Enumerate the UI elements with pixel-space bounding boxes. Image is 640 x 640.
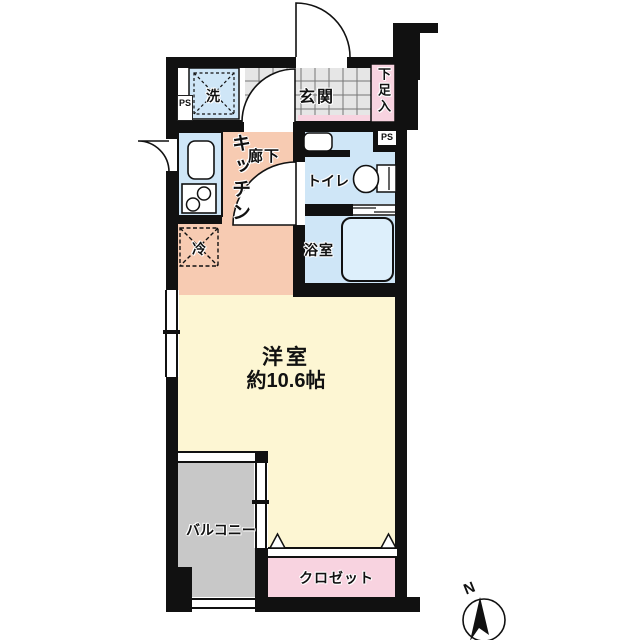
- wall-top-left: [166, 57, 296, 68]
- window-balcony-door-mullion: [252, 500, 269, 504]
- wall-entrance-bottom-left: [178, 120, 244, 132]
- wall-left-lower: [166, 377, 178, 567]
- toilet-label: トイレ: [307, 171, 349, 191]
- wall-right: [395, 57, 407, 612]
- closet-label: クロゼット: [299, 568, 374, 588]
- toilet-bowl: [354, 166, 379, 193]
- wall-toilet-bath-divider: [305, 204, 353, 216]
- pipe-space-left-label: PS: [177, 95, 193, 121]
- bathroom-label: 浴室: [304, 240, 334, 260]
- main-room-floor-lower: [268, 452, 395, 548]
- left-exterior-door-swing: [138, 141, 169, 172]
- entrance-door-swing: [296, 3, 350, 57]
- wall-right-thick: [405, 80, 418, 130]
- entrance-doorway-gap: [296, 57, 347, 68]
- kitchen-sink: [188, 141, 214, 179]
- wall-corridor-toilet-upper: [293, 132, 305, 162]
- toilet-tank: [377, 165, 396, 192]
- bathtub: [342, 218, 393, 281]
- entrance-label: 玄関: [299, 83, 335, 107]
- floorplan-canvas: 玄関 下足入 洗 キッチン 廊下 冷 トイレ 浴室 洋室 約10.6帖 バルコニ…: [0, 0, 640, 640]
- wall-bottom: [255, 597, 420, 612]
- washer-label: 洗: [206, 86, 220, 106]
- wall-balcony-corner-block: [255, 451, 268, 463]
- wall-balcony-post: [166, 567, 192, 612]
- compass: [463, 597, 505, 640]
- wall-bath-bottom: [293, 283, 407, 297]
- main-room-size: 約10.6帖: [186, 370, 386, 393]
- toilet-basin: [304, 133, 332, 151]
- wall-closet-left: [255, 548, 268, 597]
- main-room-label-block: 洋室 約10.6帖: [186, 346, 386, 393]
- balcony-label: バルコニー: [186, 520, 256, 540]
- main-room-label: 洋室: [186, 346, 386, 370]
- bath-sliding-door: [353, 204, 395, 216]
- refrigerator-label: 冷: [192, 239, 206, 259]
- window-left-mullion: [163, 330, 180, 334]
- wall-left-mid: [166, 170, 178, 290]
- corridor-label: 廊下: [248, 145, 280, 166]
- stove-burner-1: [198, 187, 211, 200]
- pipe-space-right-label: PS: [378, 131, 396, 145]
- stove-burner-2: [187, 198, 200, 211]
- shoe-storage-label: 下足入: [374, 67, 393, 115]
- wall-topright-tab: [418, 23, 438, 33]
